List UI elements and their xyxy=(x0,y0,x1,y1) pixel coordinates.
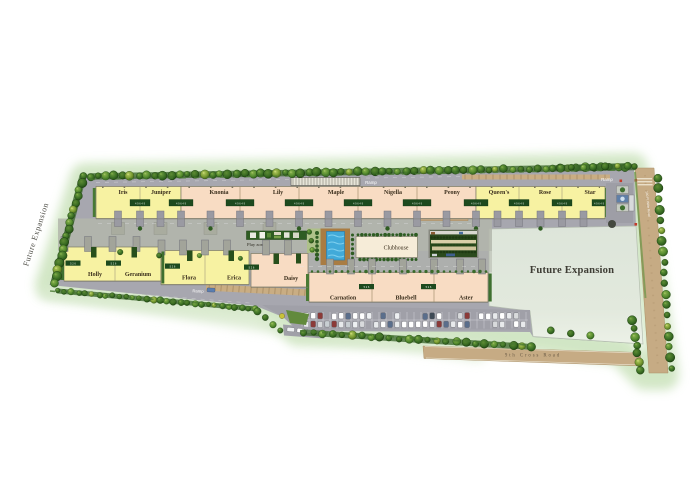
svg-text:Iris: Iris xyxy=(119,190,129,196)
svg-text:Erica: Erica xyxy=(227,276,241,282)
svg-text:4 9 6 4 9: 4 9 6 4 9 xyxy=(557,202,568,206)
svg-text:4 9 6 4 9: 4 9 6 4 9 xyxy=(471,202,482,206)
svg-text:4 9 6 4 9: 4 9 6 4 9 xyxy=(135,202,146,206)
svg-text:5 2 6: 5 2 6 xyxy=(111,262,117,266)
svg-text:Knonia: Knonia xyxy=(209,190,228,196)
svg-text:Future Expansion: Future Expansion xyxy=(530,265,615,276)
svg-text:Carnation: Carnation xyxy=(330,296,357,302)
svg-text:Flora: Flora xyxy=(182,276,196,282)
svg-text:5 2 6: 5 2 6 xyxy=(170,265,176,269)
svg-text:Star: Star xyxy=(585,190,596,196)
svg-text:4 9 6 4 9: 4 9 6 4 9 xyxy=(353,202,364,206)
svg-text:Ramp: Ramp xyxy=(365,180,377,185)
svg-text:4 9 6 4 9: 4 9 6 4 9 xyxy=(594,202,605,206)
svg-text:Holly: Holly xyxy=(88,272,102,278)
svg-text:4 9 6 4 9: 4 9 6 4 9 xyxy=(235,202,246,206)
svg-text:Daisy: Daisy xyxy=(284,276,298,282)
svg-text:Ramp: Ramp xyxy=(192,288,204,294)
svg-text:4 9 6 4 9: 4 9 6 4 9 xyxy=(412,202,423,206)
svg-text:Bluebell: Bluebell xyxy=(395,296,416,302)
svg-text:Nigella: Nigella xyxy=(384,190,402,196)
svg-text:4 9 6 4 9: 4 9 6 4 9 xyxy=(514,202,525,206)
svg-text:9th Cross Road: 9th Cross Road xyxy=(505,354,561,359)
svg-text:Geranium: Geranium xyxy=(125,272,151,278)
svg-text:Peony: Peony xyxy=(444,190,460,196)
svg-text:5 2 6: 5 2 6 xyxy=(70,262,76,266)
svg-text:Rose: Rose xyxy=(539,190,552,196)
svg-text:Queen's: Queen's xyxy=(489,190,510,196)
svg-text:Aster: Aster xyxy=(459,296,473,302)
svg-text:Clubhouse: Clubhouse xyxy=(384,246,409,252)
svg-text:Lily: Lily xyxy=(273,190,283,196)
svg-text:Juniper: Juniper xyxy=(151,190,171,196)
svg-text:5 2 6: 5 2 6 xyxy=(426,285,432,289)
svg-text:Ramp: Ramp xyxy=(601,177,613,182)
svg-text:5 2 6: 5 2 6 xyxy=(249,266,255,270)
svg-text:Maple: Maple xyxy=(328,190,345,196)
svg-text:5 2 6: 5 2 6 xyxy=(364,285,370,289)
svg-text:4 9 6 4 9: 4 9 6 4 9 xyxy=(294,202,305,206)
svg-text:4 9 6 4 9: 4 9 6 4 9 xyxy=(176,202,187,206)
